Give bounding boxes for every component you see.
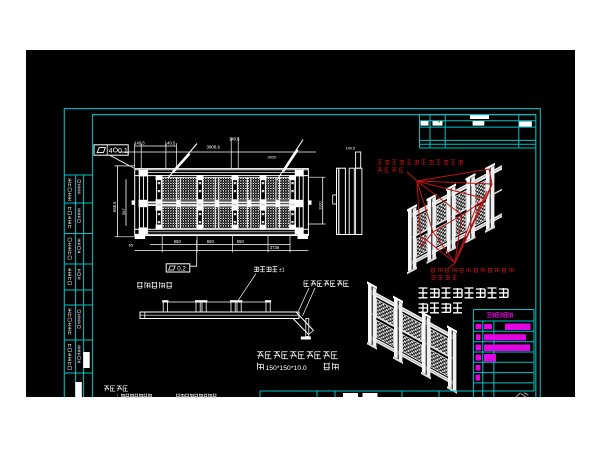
svg-text:0.1: 0.1 <box>118 148 128 155</box>
svg-text:1.: 1. <box>116 393 120 398</box>
svg-text:3020: 3020 <box>268 155 278 160</box>
svg-text:650: 650 <box>237 239 245 244</box>
svg-text:150*150*10.0: 150*150*10.0 <box>266 365 307 372</box>
svg-text:650: 650 <box>207 239 215 244</box>
svg-text:668.5: 668.5 <box>112 201 117 212</box>
svg-text:±1: ±1 <box>279 268 285 274</box>
svg-text:4: 4 <box>109 148 113 155</box>
svg-text:65: 65 <box>129 242 134 247</box>
svg-text:3808.6: 3808.6 <box>207 145 221 150</box>
svg-text:0.2: 0.2 <box>177 265 186 272</box>
svg-text:140.5: 140.5 <box>165 141 176 146</box>
svg-text:140.5: 140.5 <box>134 141 145 146</box>
svg-text:3736: 3736 <box>270 245 280 250</box>
svg-text:140.5: 140.5 <box>346 146 356 150</box>
svg-text:1100: 1100 <box>318 201 323 210</box>
svg-text:140.5: 140.5 <box>229 137 240 142</box>
svg-text:650: 650 <box>174 239 182 244</box>
svg-text:587: 587 <box>121 208 126 215</box>
